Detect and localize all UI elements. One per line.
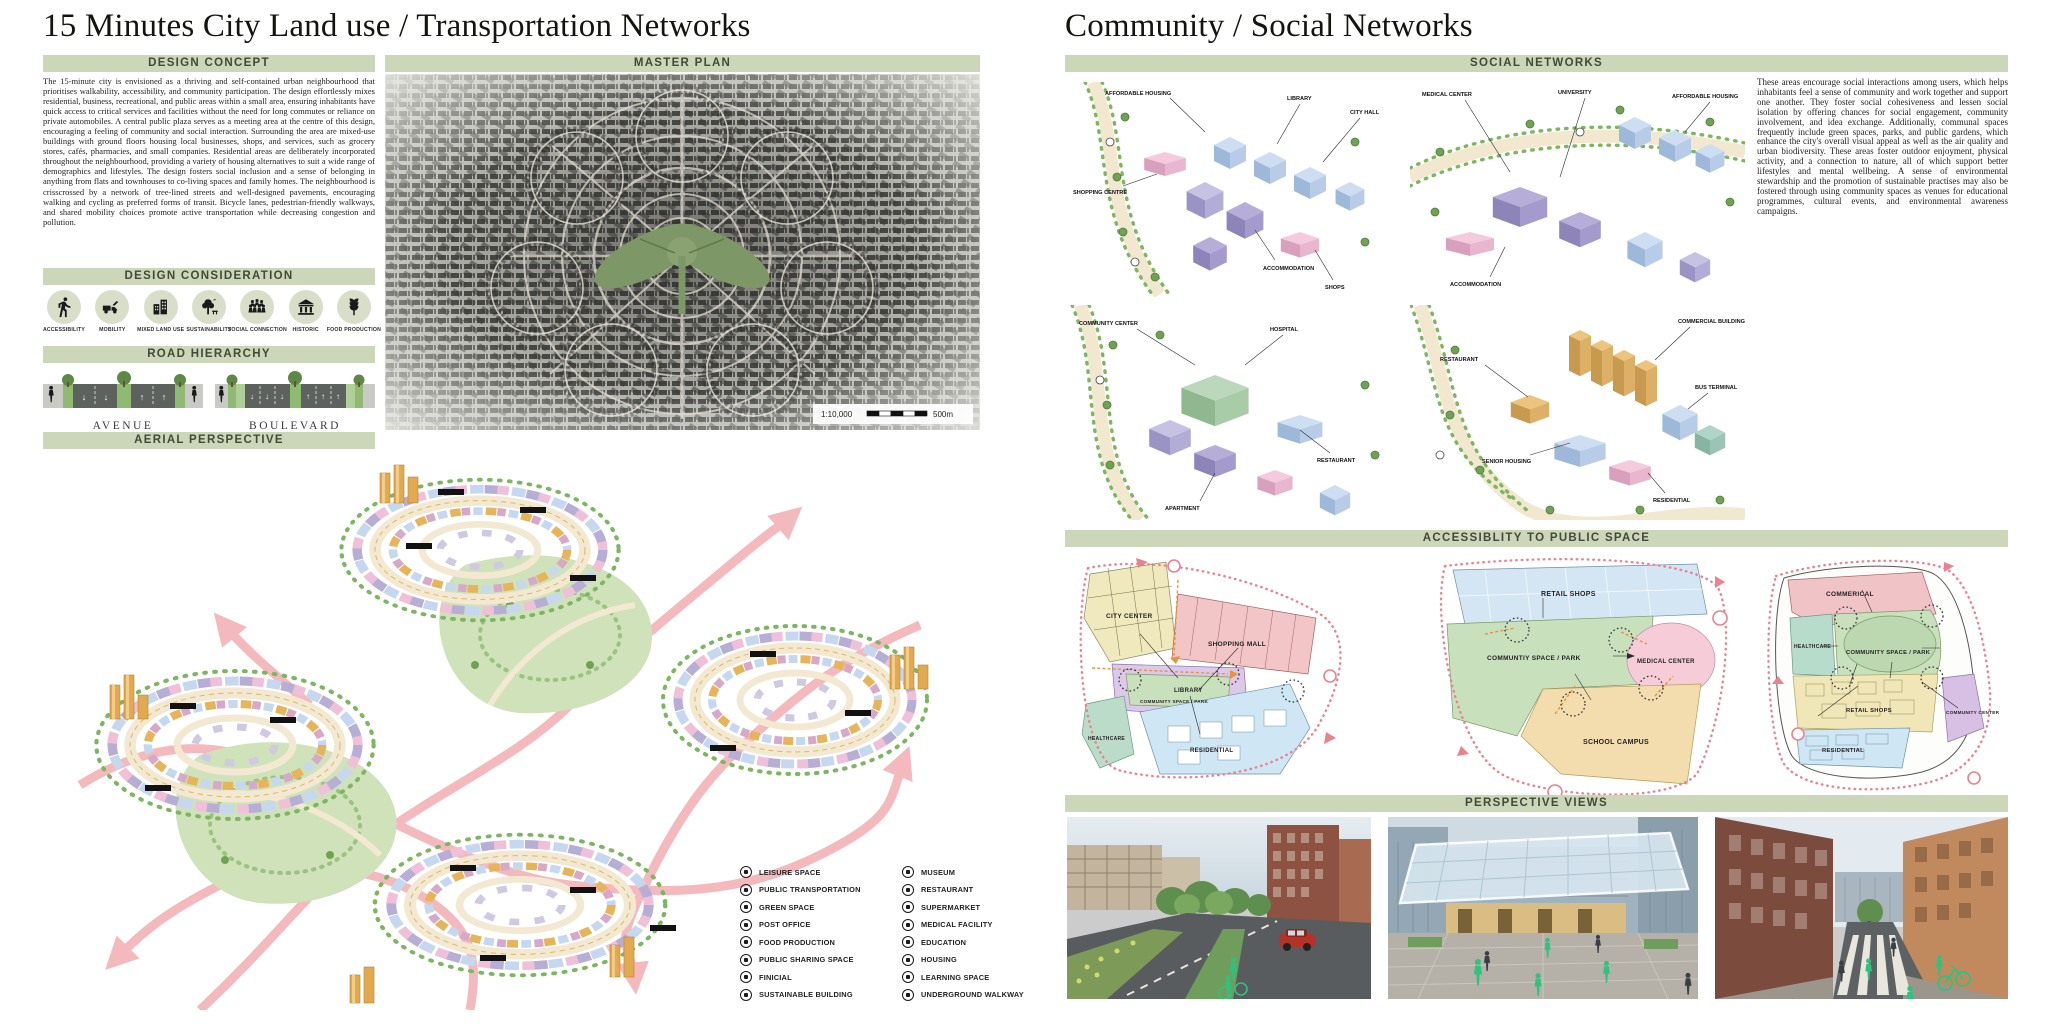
consideration-sustainability: SUSTAINABILITY	[188, 290, 230, 333]
legend-item: LEISURE SPACE	[740, 866, 880, 878]
svg-text:HOSPITAL: HOSPITAL	[1270, 327, 1298, 333]
svg-text:COMMERICAL: COMMERICAL	[1826, 591, 1874, 598]
leisure-space-icon	[740, 866, 752, 878]
learning-space-icon	[902, 971, 914, 983]
tree-icon	[192, 290, 226, 324]
svg-text:COMMUNITY SPACE / PARK: COMMUNITY SPACE / PARK	[1140, 699, 1208, 704]
legend-item: SUPERMARKET	[902, 901, 1042, 913]
supermarket-icon	[902, 901, 914, 913]
perspective-photo-crossing	[1715, 817, 2008, 999]
wheat-icon	[337, 290, 371, 324]
design-consideration-header: DESIGN CONSIDERATION	[43, 268, 375, 285]
svg-text:SHOPS: SHOPS	[1325, 285, 1345, 291]
legend-item: SUSTAINABLE BUILDING	[740, 989, 880, 1001]
legend-item: RESTAURANT	[902, 884, 1042, 896]
svg-text:COMMUNITY SPACE / PARK: COMMUNITY SPACE / PARK	[1846, 650, 1931, 656]
svg-text:COMMUNITY CENTER: COMMUNITY CENTER	[1079, 321, 1138, 327]
legend-item: EDUCATION	[902, 936, 1042, 948]
svg-text:RETAIL SHOPS: RETAIL SHOPS	[1541, 591, 1596, 598]
legend-item: LEARNING SPACE	[902, 971, 1042, 983]
accessibility-diagram-3: COMMERICAL HEALTHCARE COMMUNITY SPACE / …	[1762, 556, 2010, 794]
svg-text:ACCOMMODATION: ACCOMMODATION	[1450, 282, 1501, 288]
medical-facility-icon	[902, 919, 914, 931]
public-sharing-space-icon	[740, 954, 752, 966]
social-network-diagram-3: COMMUNITY CENTER HOSPITAL RESTAURANT APA…	[1065, 305, 1395, 520]
svg-text:AFFORDABLE HOUSING: AFFORDABLE HOUSING	[1105, 91, 1171, 97]
housing-icon	[902, 954, 914, 966]
svg-text:COMMUNTIY SPACE / PARK: COMMUNTIY SPACE / PARK	[1487, 655, 1581, 662]
svg-text:↓: ↓	[104, 392, 109, 402]
svg-text:↓: ↓	[82, 392, 87, 402]
mixed-buildings-icon	[144, 290, 178, 324]
master-plan-header: MASTER PLAN	[385, 55, 980, 72]
road-hierarchy-header: ROAD HIERARCHY	[43, 346, 375, 363]
svg-text:COMMUNITY CENTER: COMMUNITY CENTER	[1946, 710, 2000, 715]
svg-text:CITY HALL: CITY HALL	[1350, 110, 1380, 116]
svg-text:RESIDENTIAL: RESIDENTIAL	[1190, 748, 1233, 754]
museum-icon	[902, 866, 914, 878]
legend-item: MEDICAL FACILITY	[902, 919, 1042, 931]
svg-text:RETAIL SHOPS: RETAIL SHOPS	[1846, 708, 1892, 714]
legend-item: POST OFFICE	[740, 919, 880, 931]
legend-item: HOUSING	[902, 954, 1042, 966]
aerial-perspective-header: AERIAL PERSPECTIVE	[43, 432, 375, 449]
green-space-icon	[740, 901, 752, 913]
social-network-diagram-4: COMMERCIAL BUILDING RESTAURANT BUS TERMI…	[1410, 305, 1745, 520]
svg-text:↑: ↑	[336, 392, 340, 401]
right-panel-title: Community / Social Networks	[1065, 8, 1473, 45]
legend-item: FINICIAL	[740, 971, 880, 983]
svg-text:↑: ↑	[321, 392, 325, 401]
svg-text:LIBRARY: LIBRARY	[1174, 688, 1203, 694]
avenue-label: AVENUE	[43, 420, 203, 432]
avenue-section-diagram: ↓↓ ↑↑	[43, 368, 203, 416]
svg-text:↓: ↓	[250, 392, 254, 401]
vehicle-icon	[95, 290, 129, 324]
svg-text:MEDICAL CENTER: MEDICAL CENTER	[1637, 659, 1695, 665]
svg-text:HEALTHCARE: HEALTHCARE	[1794, 644, 1831, 650]
cluster-west	[96, 671, 373, 819]
consideration-accessibility: ACCESSIBILITY	[43, 290, 85, 333]
svg-text:BUS TERMINAL: BUS TERMINAL	[1695, 385, 1738, 391]
accessibility-diagram-1: CITY CENTER SHOPPING MALL LIBRARY COMMUN…	[1078, 556, 1408, 788]
master-plan-map: 1:10,000 500m	[385, 74, 980, 430]
svg-text:AFFORDABLE HOUSING: AFFORDABLE HOUSING	[1672, 94, 1738, 100]
aerial-legend: LEISURE SPACE PUBLIC TRANSPORTATION GREE…	[740, 866, 1042, 1001]
svg-text:ACCOMMODATION: ACCOMMODATION	[1263, 266, 1314, 272]
legend-item: PUBLIC SHARING SPACE	[740, 954, 880, 966]
svg-text:↓: ↓	[265, 392, 269, 401]
legend-item: FOOD PRODUCTION	[740, 936, 880, 948]
svg-text:SCHOOL CAMPUS: SCHOOL CAMPUS	[1583, 739, 1649, 746]
svg-text:↑: ↑	[162, 392, 167, 402]
social-network-diagram-2: MEDICAL CENTER UNIVERSITY AFFORDABLE HOU…	[1410, 82, 1745, 297]
social-networks-header: SOCIAL NETWORKS	[1065, 55, 2008, 72]
left-panel-title: 15 Minutes City Land use / Transportatio…	[43, 8, 751, 45]
svg-text:RESIDENTIAL: RESIDENTIAL	[1822, 748, 1864, 754]
people-group-icon	[240, 290, 274, 324]
financial-icon	[740, 971, 752, 983]
svg-text:1:10,000: 1:10,000	[821, 410, 853, 419]
consideration-mobility: MOBILITY	[91, 290, 133, 333]
food-production-icon	[740, 936, 752, 948]
svg-text:RESTAURANT: RESTAURANT	[1440, 357, 1479, 363]
perspective-photo-plaza	[1388, 817, 1698, 999]
post-office-icon	[740, 919, 752, 931]
legend-column-1: LEISURE SPACE PUBLIC TRANSPORTATION GREE…	[740, 866, 880, 1001]
svg-text:APARTMENT: APARTMENT	[1165, 506, 1200, 512]
accessibility-diagram-2: RETAIL SHOPS COMMUNTIY SPACE / PARK MEDI…	[1425, 556, 1735, 796]
perspective-views-header: PERSPECTIVE VIEWS	[1065, 795, 2008, 812]
boulevard-label: BOULEVARD	[215, 420, 375, 432]
svg-text:↓: ↓	[280, 392, 284, 401]
svg-text:↑: ↑	[140, 392, 145, 402]
underground-walkway-icon	[902, 989, 914, 1001]
svg-text:HEALTHCARE: HEALTHCARE	[1088, 736, 1125, 742]
cluster-south	[375, 835, 665, 976]
svg-text:UNIVERSITY: UNIVERSITY	[1558, 90, 1592, 96]
svg-text:SHOPPING MALL: SHOPPING MALL	[1208, 641, 1266, 648]
svg-text:RESTAURANT: RESTAURANT	[1317, 458, 1356, 464]
legend-item: MUSEUM	[902, 866, 1042, 878]
consideration-social-connection: SOCIAL CONNECTION	[236, 290, 278, 333]
education-icon	[902, 936, 914, 948]
svg-text:500m: 500m	[933, 410, 953, 419]
restaurant-icon	[902, 884, 914, 896]
accessibility-header: ACCESSIBLITY TO PUBLIC SPACE	[1065, 530, 2008, 547]
svg-text:CITY CENTER: CITY CENTER	[1106, 613, 1153, 620]
legend-column-2: MUSEUM RESTAURANT SUPERMARKET MEDICAL FA…	[902, 866, 1042, 1001]
map-scale-bar: 1:10,000 500m	[813, 404, 973, 424]
svg-text:RESIDENTIAL: RESIDENTIAL	[1653, 498, 1691, 504]
design-consideration-icons: ACCESSIBILITY MOBILITY MIXED LAND USE SU…	[43, 290, 375, 333]
svg-text:SHOPPING CENTRE: SHOPPING CENTRE	[1073, 190, 1127, 196]
boulevard-section-diagram: ↓↓↓ ↑↑↑	[215, 368, 375, 416]
presentation-board: 15 Minutes City Land use / Transportatio…	[0, 0, 2048, 1024]
svg-text:LIBRARY: LIBRARY	[1287, 96, 1312, 102]
design-concept-header: DESIGN CONCEPT	[43, 55, 375, 72]
consideration-historic: HISTORIC	[285, 290, 327, 333]
sustainable-building-icon	[740, 989, 752, 1001]
legend-item: PUBLIC TRANSPORTATION	[740, 884, 880, 896]
consideration-mixed-land-use: MIXED LAND USE	[140, 290, 182, 333]
legend-item: GREEN SPACE	[740, 901, 880, 913]
social-networks-text: These areas encourage social interaction…	[1757, 78, 2008, 253]
classical-building-icon	[289, 290, 323, 324]
social-network-diagram-1: AFFORDABLE HOUSING LIBRARY CITY HALL SHO…	[1065, 82, 1395, 297]
svg-text:COMMERCIAL BUILDING: COMMERCIAL BUILDING	[1678, 319, 1745, 325]
perspective-photo-street	[1067, 817, 1371, 999]
public-transportation-icon	[740, 884, 752, 896]
legend-item: UNDERGROUND WALKWAY	[902, 989, 1042, 1001]
svg-text:MEDICAL CENTER: MEDICAL CENTER	[1422, 92, 1472, 98]
svg-text:↑: ↑	[306, 392, 310, 401]
design-concept-text: The 15-minute city is envisioned as a th…	[43, 76, 375, 266]
svg-text:SENIOR HOUSING: SENIOR HOUSING	[1482, 459, 1531, 465]
pedestrian-icon	[47, 290, 81, 324]
consideration-food-production: FOOD PRODUCTION	[333, 290, 375, 333]
